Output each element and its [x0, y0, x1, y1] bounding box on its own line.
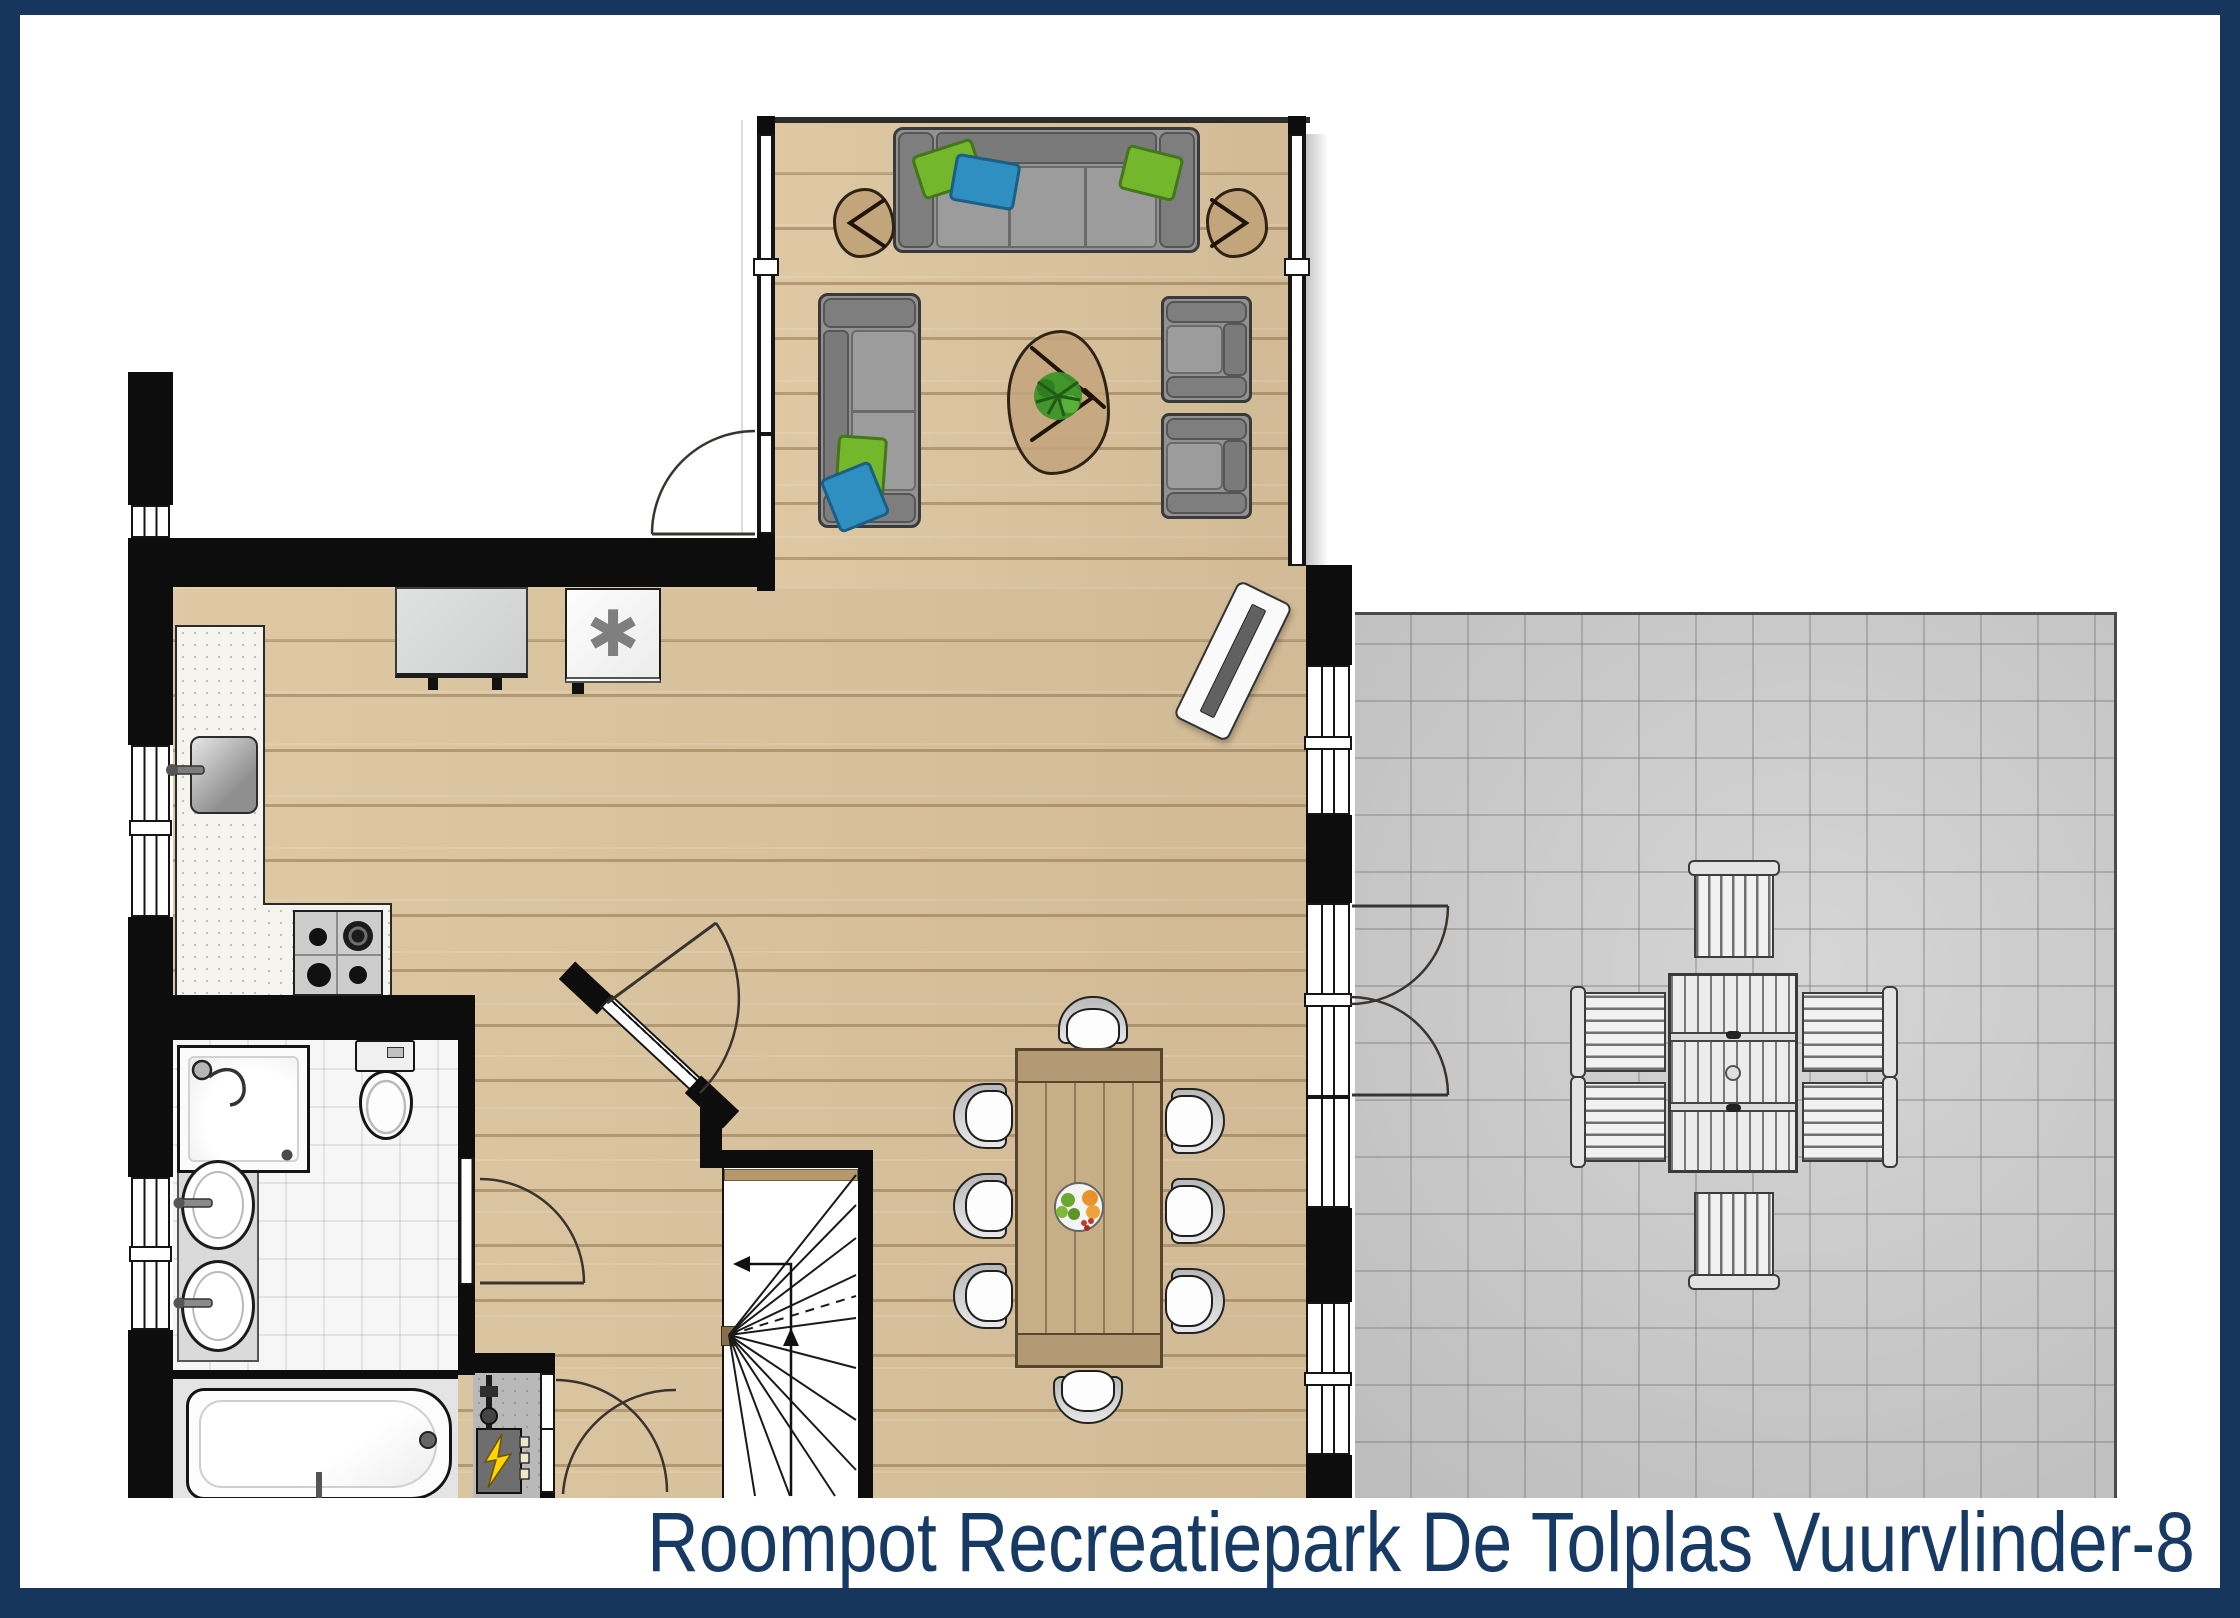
washing-machine: ✱: [565, 588, 661, 683]
dining-chair: [1058, 996, 1128, 1052]
dining-chair: [1161, 1178, 1225, 1244]
dining-chair-seat: [965, 1270, 1013, 1322]
outdoor-table-rail: [1671, 1032, 1795, 1042]
washbasin-bowl: [192, 1271, 244, 1341]
outdoor-chair: [1578, 1082, 1666, 1162]
shower: [177, 1045, 310, 1173]
kitchen-top-wall: [128, 538, 775, 587]
right-wall-segment: [1306, 815, 1352, 903]
side-table-left: [833, 188, 895, 258]
living-right-window: [1288, 134, 1306, 566]
plan-title: Roompot Recreatiepark De Tolplas Vuurvli…: [647, 1498, 2195, 1586]
outdoor-chair-backrest: [1570, 986, 1586, 1078]
stairs-newel-post: [721, 1326, 735, 1346]
dining-chair: [953, 1263, 1017, 1329]
outdoor-chair: [1694, 868, 1774, 958]
window-mullion: [1284, 258, 1310, 276]
dining-right-window-2: [1306, 1097, 1350, 1208]
armchair-armrest: [1166, 301, 1247, 323]
outdoor-chair-backrest: [1688, 860, 1780, 876]
sofa-armrest: [823, 298, 916, 328]
bathroom-top-wall: [128, 995, 460, 1040]
side-table-right: [1206, 188, 1268, 258]
dining-chair-seat: [1165, 1275, 1213, 1327]
armchair-backrest: [1223, 440, 1247, 492]
dining-table-end-board: [1018, 1333, 1160, 1365]
bathtub-partition: [173, 1370, 458, 1379]
window-mullion: [129, 820, 172, 836]
coffee-table: [1007, 330, 1110, 475]
dining-chair-seat: [1061, 1370, 1115, 1412]
outdoor-chair-backrest: [1570, 1076, 1586, 1168]
outdoor-chair-backrest: [1882, 1076, 1898, 1168]
living-top-wall: [757, 117, 1310, 123]
armchair-armrest: [1166, 376, 1247, 398]
dining-chair-seat: [1165, 1185, 1213, 1237]
window-mullion: [1304, 1372, 1352, 1386]
armchair-seat: [1166, 442, 1223, 490]
wall-cap: [1288, 116, 1306, 134]
utility-top-wall: [458, 1353, 555, 1373]
entrance-door-arc: [652, 431, 755, 534]
armchair-armrest: [1166, 418, 1247, 440]
bathroom-door-panel: [458, 1157, 475, 1285]
wall-cap: [757, 116, 775, 134]
shower-tray: [188, 1056, 299, 1162]
bathroom-right-wall: [458, 995, 475, 1157]
armchair-backrest: [1223, 323, 1247, 376]
window-mullion: [1304, 736, 1352, 750]
boiler: [476, 1428, 522, 1494]
toilet-flush-button: [387, 1047, 404, 1058]
washbasin-bowl: [192, 1171, 244, 1239]
exterior-shadow-line: [741, 120, 743, 534]
outdoor-chair: [1578, 992, 1666, 1072]
dining-table: [1015, 1048, 1163, 1368]
floor-plan: ✱: [0, 0, 2240, 1618]
right-wall-segment: [1306, 565, 1352, 665]
left-wall-segment: [128, 917, 173, 1177]
living-left-window: [757, 134, 775, 434]
dining-chair: [1161, 1268, 1225, 1334]
dining-chair: [1053, 1366, 1123, 1424]
stove: [293, 910, 383, 996]
stairs-top-wall: [716, 1150, 873, 1168]
cabinet-foot: [428, 678, 438, 690]
window-mullion: [129, 1246, 172, 1262]
outdoor-chair-backrest: [1882, 986, 1898, 1078]
outdoor-chair: [1802, 1082, 1890, 1162]
dining-chair-seat: [965, 1090, 1013, 1142]
right-wall-segment: [1306, 1208, 1352, 1302]
french-door-meeting-stile: [1304, 993, 1352, 1007]
dining-chair-seat: [1165, 1095, 1213, 1147]
outdoor-table-rail: [1671, 1102, 1795, 1112]
armchair: [1161, 413, 1252, 519]
washbasin: [181, 1260, 255, 1352]
cabinet-foot: [492, 678, 502, 690]
staircase: [722, 1168, 858, 1498]
exterior-shadow-strip: [1306, 134, 1328, 612]
dining-table-end-board: [1018, 1051, 1160, 1083]
left-wall-segment: [128, 1330, 173, 1498]
washbasin: [181, 1160, 255, 1250]
armchair-armrest: [1166, 492, 1247, 514]
entrance-door-panel: [757, 434, 775, 534]
washing-machine-foot: [572, 683, 584, 694]
outdoor-chair: [1802, 992, 1890, 1072]
toilet-cistern: [355, 1040, 415, 1072]
armchair: [1161, 296, 1252, 403]
outdoor-table: [1668, 973, 1798, 1173]
washing-machine-icon: ✱: [586, 602, 640, 666]
dining-chair-seat: [965, 1180, 1013, 1232]
bathtub-basin: [199, 1400, 437, 1488]
left-wall-segment: [128, 587, 173, 745]
left-wall-upper: [128, 372, 173, 505]
kitchen-sink: [190, 736, 258, 814]
left-small-window: [131, 505, 170, 538]
right-wall-segment: [1306, 1455, 1352, 1498]
stairs-top-step: [724, 1169, 858, 1181]
kitchen-cabinet: [395, 587, 528, 678]
dining-chair-seat: [1066, 1008, 1120, 1050]
bathtub: [186, 1388, 452, 1500]
outdoor-chair-backrest: [1688, 1274, 1780, 1290]
stairs-right-wall: [858, 1150, 873, 1498]
dining-chair: [1161, 1088, 1225, 1154]
dining-chair: [953, 1083, 1017, 1149]
armchair-seat: [1166, 325, 1223, 374]
outdoor-chair: [1694, 1192, 1774, 1282]
utility-door-panel: [540, 1373, 555, 1493]
window-mullion: [753, 258, 779, 276]
dining-chair: [953, 1173, 1017, 1239]
